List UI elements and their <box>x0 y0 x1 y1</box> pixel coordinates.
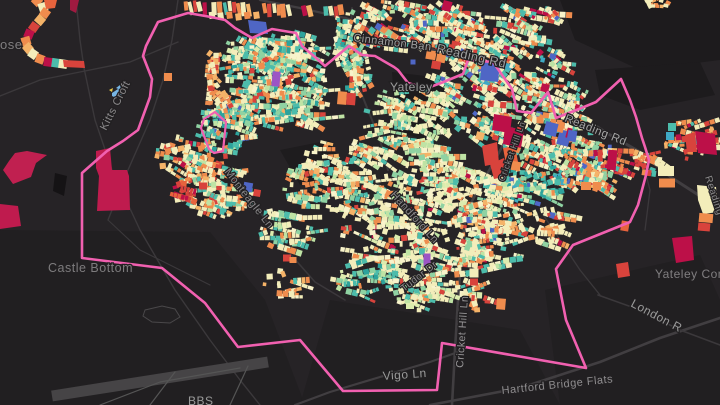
svg-text:Castle Bottom: Castle Bottom <box>48 261 133 275</box>
svg-text:Yateley Comm: Yateley Comm <box>655 267 720 281</box>
svg-text:ose: ose <box>0 37 22 52</box>
svg-text:Yateley: Yateley <box>390 80 433 94</box>
svg-text:BBS: BBS <box>188 394 214 405</box>
